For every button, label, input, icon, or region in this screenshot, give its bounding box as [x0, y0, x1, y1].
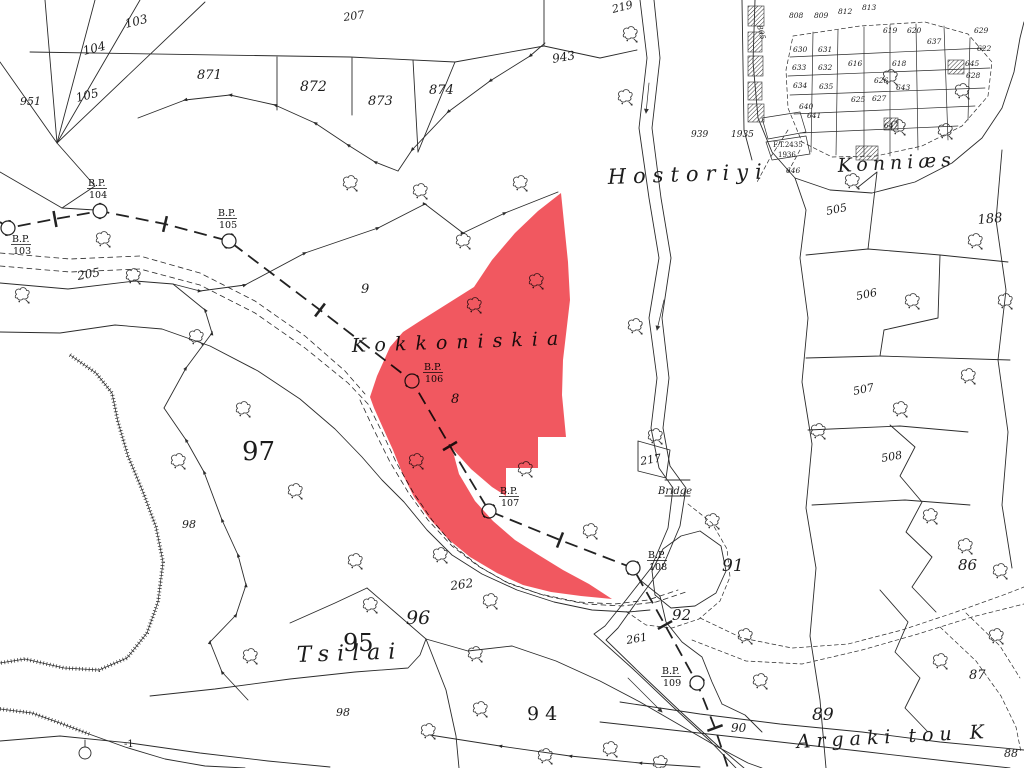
map-label: 9: [361, 282, 369, 297]
map-label: 90: [731, 721, 747, 735]
tree-icon: [236, 402, 250, 418]
village-parcel-number: 633: [792, 63, 807, 72]
bp-label: B.P.: [88, 178, 106, 189]
map-label: 87: [969, 668, 986, 683]
map-label: 219: [610, 0, 634, 16]
village-parcel-number: 626: [874, 76, 889, 85]
tree-icon: [456, 234, 470, 250]
survey-station-marker: B.P.104: [87, 178, 107, 218]
map-label: 505: [825, 201, 848, 218]
map-label: 92: [672, 606, 691, 624]
map-label: 188: [977, 211, 1003, 228]
map-label: 943: [551, 48, 576, 66]
map-label: 98: [182, 518, 196, 531]
village-parcel-number: 629: [974, 26, 989, 35]
map-label: 96: [406, 607, 430, 629]
village-parcel-number: 645: [965, 59, 980, 68]
village-parcel-number: 640: [799, 102, 814, 111]
map-label: 508: [880, 449, 903, 465]
map-label: 874: [429, 83, 454, 98]
tree-icon: [15, 288, 29, 304]
bp-number: 104: [89, 190, 107, 201]
survey-station-marker: B.P.108: [626, 550, 667, 575]
tree-icon: [958, 539, 972, 555]
map-label: 97: [242, 437, 275, 467]
village-parcel-number: 809: [814, 11, 829, 20]
map-label: 89: [812, 705, 834, 725]
village-parcel-number: 632: [818, 63, 833, 72]
map-label: 262: [448, 576, 474, 593]
bp-label: B.P.: [218, 208, 236, 219]
map-label: Konniæs: [836, 149, 956, 177]
map-label: 103: [123, 12, 149, 31]
village-parcel-number: 641: [807, 111, 821, 120]
tree-icon: [538, 749, 552, 765]
tree-icon: [171, 454, 185, 470]
village-parcel-number: 812: [838, 7, 853, 16]
tree-icon: [348, 554, 362, 570]
escarpment-hachure: [0, 355, 245, 768]
tree-icon: [648, 429, 662, 445]
map-label: F.T.2435: [773, 141, 803, 149]
tree-icon: [603, 742, 617, 758]
map-label: 871: [197, 68, 222, 83]
tree-icon: [993, 564, 1007, 580]
tree-icon: [893, 402, 907, 418]
bp-number: 108: [649, 562, 667, 573]
map-label: 939: [691, 130, 708, 140]
map-label: 507: [852, 381, 875, 398]
map-label: Argaki tou K: [794, 721, 990, 753]
tree-icon: [583, 524, 597, 540]
tree-icon: [468, 647, 482, 663]
tree-icon: [811, 424, 825, 440]
survey-station-marker: B.P.105: [217, 208, 237, 248]
survey-station-marker: B.P.109: [661, 666, 704, 690]
survey-stations: B.P.103B.P.104B.P.105B.P.106B.P.107B.P.1…: [1, 178, 704, 690]
map-label: 205: [75, 265, 101, 283]
village-parcel-number: 637: [927, 37, 942, 46]
tree-icon: [473, 702, 487, 718]
map-label: 207: [342, 8, 366, 24]
bp-label: B.P.: [648, 550, 666, 561]
tree-icon: [938, 124, 952, 140]
map-label: Hostoriyi: [606, 159, 769, 189]
village-parcel-number: 622: [977, 44, 992, 53]
village-parcel-number: 627: [872, 94, 887, 103]
tree-icon: [483, 594, 497, 610]
tree-icon: [413, 184, 427, 200]
map-label: -1: [124, 739, 134, 750]
village-parcel-number: 628: [966, 71, 981, 80]
map-label: 873: [368, 94, 393, 109]
tree-icon: [628, 319, 642, 335]
tree-icon: [288, 484, 302, 500]
village-parcel-number: 618: [892, 59, 907, 68]
bp-number: 105: [219, 220, 237, 231]
village-parcel-number: 808: [789, 11, 804, 20]
map-label: 94: [527, 703, 563, 725]
village-parcel-number: 646: [786, 166, 801, 175]
map-label: 104: [81, 39, 107, 58]
map-label: 98: [336, 706, 350, 719]
cadastral-map-canvas: B.P.103B.P.104B.P.105B.P.106B.P.107B.P.1…: [0, 0, 1024, 768]
stream-lines: [594, 0, 744, 768]
bp-label: B.P.: [662, 666, 680, 677]
bp-number: 107: [501, 498, 519, 509]
bp-label: B.P.: [12, 234, 30, 245]
tree-icon: [653, 756, 667, 768]
village-parcel-number: 813: [862, 3, 877, 12]
map-label: 105: [74, 86, 100, 105]
bp-number: 103: [13, 246, 31, 257]
map-label: 1935: [731, 130, 754, 140]
map-label: 91: [722, 556, 744, 576]
map-label: 88: [1004, 747, 1018, 760]
map-label: 95: [343, 629, 374, 657]
tree-icon: [343, 176, 357, 192]
tree-icon: [96, 232, 110, 248]
tree-icon: [968, 234, 982, 250]
survey-station-marker: B.P.103: [1, 221, 31, 257]
village-parcel-number: 643: [896, 83, 911, 92]
map-viewport: B.P.103B.P.104B.P.105B.P.106B.P.107B.P.1…: [0, 0, 1024, 768]
tree-icon: [955, 84, 969, 100]
map-label: 951: [20, 95, 41, 108]
tree-icon: [933, 654, 947, 670]
tree-icon: [243, 649, 257, 665]
tree-icon: [923, 509, 937, 525]
tree-icon: [623, 27, 637, 43]
tree-icon: [905, 294, 919, 310]
village-parcel-number: 630: [793, 45, 808, 54]
bp-number: 109: [663, 678, 681, 689]
tree-icon: [705, 514, 719, 530]
map-label: 506: [855, 286, 878, 303]
village-parcel-number: 631: [818, 45, 832, 54]
map-label: 872: [300, 79, 327, 95]
village-parcel-number: 647: [884, 121, 899, 130]
highlighted-parcel[interactable]: [370, 193, 612, 599]
tree-icon: [753, 674, 767, 690]
map-label: Bridge: [657, 486, 692, 497]
tree-icon: [513, 176, 527, 192]
village-parcel-number: 635: [819, 82, 834, 91]
tree-icon: [961, 369, 975, 385]
village-parcel-number: 625: [851, 95, 866, 104]
map-label: 261: [624, 631, 648, 648]
tree-icon: [421, 724, 435, 740]
village-parcel-number: 634: [793, 81, 808, 90]
tree-icon: [189, 330, 203, 346]
village-parcel-number: 620: [907, 26, 922, 35]
village-parcel-number: 616: [848, 59, 863, 68]
tree-icon: [363, 598, 377, 614]
map-label: 1936: [778, 151, 796, 159]
village-parcel-number: 619: [883, 26, 898, 35]
tree-icon: [738, 629, 752, 645]
tree-icon: [433, 548, 447, 564]
tree-icon: [618, 90, 632, 106]
map-label: 86: [958, 556, 978, 574]
